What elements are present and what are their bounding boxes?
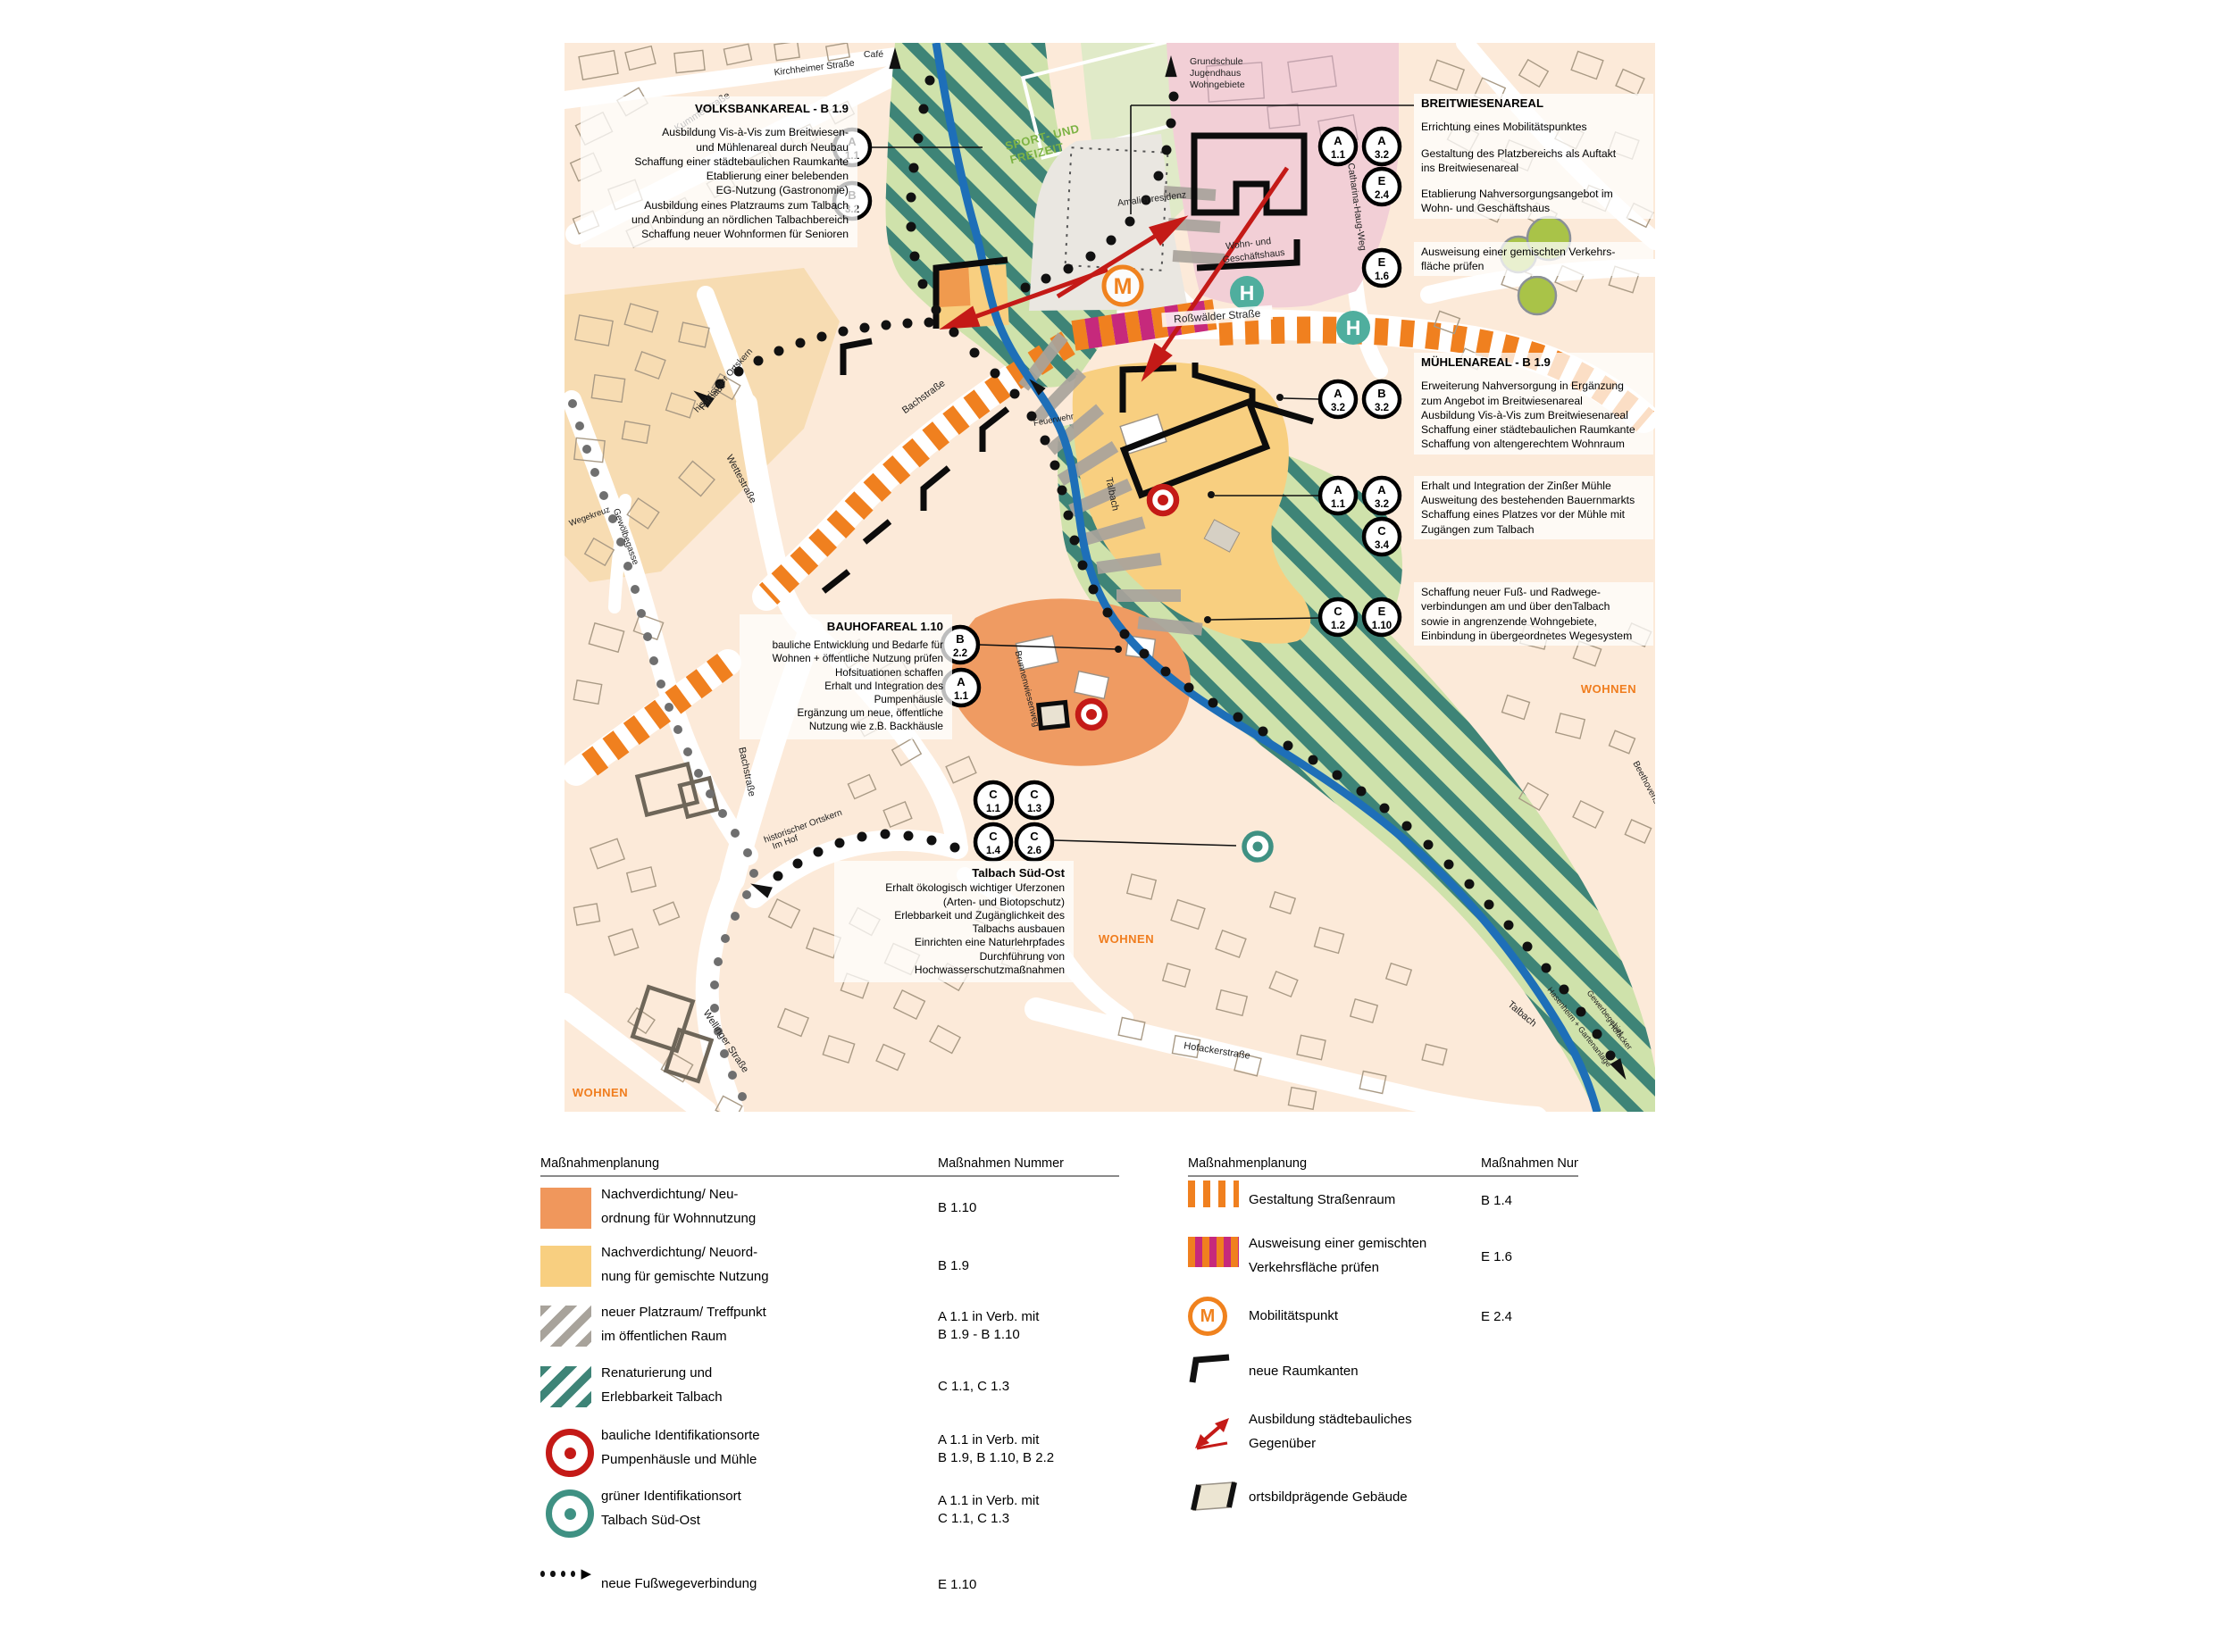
red-identification-icon	[1086, 709, 1097, 720]
annotation-title: BREITWIESENAREAL	[1421, 96, 1646, 111]
legend-row-label: ortsbildprägende Gebäude	[1249, 1485, 1408, 1509]
street-label: Wohngebiete	[1190, 79, 1245, 90]
footpath-dot	[1484, 900, 1494, 910]
path-dot-gray	[643, 632, 652, 641]
footpath-dot	[1154, 171, 1164, 181]
legend-row-number: B 1.10	[938, 1199, 976, 1217]
annotation-line: Schaffung einer städtebaulichen Raumkant…	[1421, 422, 1646, 437]
footpath-dot	[1161, 667, 1171, 677]
measure-marker: C1.3	[1016, 782, 1052, 818]
legend-row-label: bauliche IdentifikationsortePumpenhäusle…	[601, 1423, 760, 1472]
footpath-dot	[1058, 486, 1067, 496]
annotation-line: fläche prüfen	[1421, 259, 1646, 273]
legend-stripes-teal-icon	[540, 1366, 591, 1407]
path-dot-gray	[706, 789, 715, 798]
annotation-line: Erlebbarkeit und Zugänglichkeit des	[843, 909, 1065, 922]
legend-red-arrow-icon	[1188, 1413, 1239, 1462]
footpath-dot	[1402, 822, 1412, 831]
legend-row-number: A 1.1 in Verb. mitC 1.1, C 1.3	[938, 1492, 1039, 1528]
path-dot-gray	[590, 468, 599, 477]
svg-text:1.2: 1.2	[1331, 621, 1345, 631]
path-dot-gray	[599, 491, 608, 500]
annotation-line: Wohnen + öffentliche Nutzung prüfen	[749, 652, 943, 665]
legend-row-label: neue Raumkanten	[1249, 1359, 1359, 1383]
footpath-dot	[949, 328, 959, 338]
footpath-dot	[1070, 536, 1080, 546]
footpath-dot	[919, 104, 929, 114]
footpath-dot	[904, 831, 914, 841]
footpath-dot	[909, 163, 919, 173]
path-dot-gray	[673, 725, 682, 734]
annotation-line: Durchführung von	[843, 950, 1065, 964]
footpath-dot	[918, 280, 928, 289]
path-dot-gray	[749, 869, 758, 878]
annotation-line: (Arten- und Biotopschutz)	[843, 896, 1065, 909]
platzraum-stripe	[1116, 589, 1181, 602]
path-dot-gray	[728, 1071, 737, 1080]
svg-text:H: H	[1346, 316, 1361, 339]
annotation-talbach-suedost: Talbach Süd-Ost Erhalt ökologisch wichti…	[834, 861, 1074, 982]
svg-text:1.1: 1.1	[986, 804, 1001, 814]
annotation-line: Ausweitung des bestehenden Bauernmarkts	[1421, 493, 1646, 507]
green-identification-icon	[1253, 842, 1263, 852]
annotation-line: Pumpenhäusle	[749, 693, 943, 706]
legend-bullseye-teal-icon	[546, 1489, 594, 1538]
annotation-line: Erhalt und Integration der Zinßer Mühle	[1421, 479, 1646, 493]
footpath-dot	[814, 847, 824, 857]
footpath-dot	[1284, 741, 1293, 751]
footpath-dot	[1125, 217, 1135, 227]
footpath-dot	[1078, 561, 1088, 571]
annotation-bauhofareal: BAUHOFAREAL 1.10 bauliche Entwicklung un…	[740, 614, 952, 739]
legend-header-number: Maßnahmen Nummer	[1481, 1152, 1578, 1176]
legend-row-label: Nachverdichtung/ Neuord-nung für gemisch…	[601, 1240, 769, 1289]
zone-volksbank-orange	[936, 266, 970, 307]
annotation-title: MÜHLENAREAL - B 1.9	[1421, 355, 1646, 370]
footpath-dot	[1041, 274, 1051, 284]
legend-vstripes-mixed-icon	[1188, 1237, 1239, 1267]
footpath-dot	[1576, 1007, 1586, 1017]
plan-map: HHMA1.1B3.2A1.1A3.2E2.4E1.6A3.2B3.2A1.1A…	[565, 43, 1655, 1112]
footpath-dot	[1120, 630, 1130, 639]
path-dot-gray	[665, 703, 673, 712]
footpath-dot	[796, 338, 806, 348]
footpath-dot	[1103, 608, 1113, 618]
legend-right: Maßnahmenplanung Maßnahmen Nummer Gestal…	[1188, 1152, 1578, 1581]
legend-header-planning: Maßnahmenplanung	[540, 1152, 659, 1176]
legend-header-number: Maßnahmen Nummer	[938, 1152, 1064, 1176]
footpath-dot	[1184, 683, 1194, 693]
footpath-dot	[1234, 713, 1243, 722]
legend-row-number: C 1.1, C 1.3	[938, 1378, 1009, 1396]
path-dot-gray	[714, 957, 723, 966]
footpath-dot	[754, 356, 764, 366]
annotation-line: Ausbildung Vis-à-Vis zum Breitwiesen-	[590, 125, 849, 139]
path-dot-gray	[694, 769, 703, 778]
annotation-line: verbindungen am und über denTalbach	[1421, 599, 1646, 613]
legend-row-number: E 1.6	[1481, 1248, 1512, 1266]
svg-text:A: A	[1377, 483, 1386, 496]
svg-text:2.4: 2.4	[1375, 190, 1390, 201]
footpath-dot	[1424, 840, 1434, 850]
legend-dotted-arrow-icon: ▶	[540, 1564, 591, 1582]
legend-header-planning: Maßnahmenplanung	[1188, 1152, 1307, 1176]
footpath-dot	[950, 843, 960, 853]
svg-text:1.1: 1.1	[1331, 499, 1346, 510]
footpath-dot	[839, 327, 849, 337]
svg-text:3.2: 3.2	[1375, 150, 1389, 161]
svg-text:A: A	[1334, 387, 1342, 400]
street-label: WOHNEN	[573, 1086, 628, 1099]
annotation-line: Einbindung in übergeordnetes Wegesystem	[1421, 629, 1646, 643]
svg-text:A: A	[1334, 134, 1342, 147]
annotation-line: Schaffung eines Platzes vor der Mühle mi…	[1421, 507, 1646, 521]
measure-marker: B3.2	[1364, 381, 1400, 417]
annotation-line: zum Angebot im Breitwiesenareal	[1421, 394, 1646, 408]
path-dot-gray	[710, 980, 719, 989]
legend-row-number: A 1.1 in Verb. mitB 1.9 - B 1.10	[938, 1308, 1039, 1344]
footpath-dot	[1444, 860, 1454, 870]
path-dot-gray	[568, 399, 577, 408]
legend-row-number: E 1.10	[938, 1576, 976, 1594]
measure-marker: A3.2	[1320, 381, 1356, 417]
footpath-dot	[882, 321, 891, 330]
legend-row-label: Ausbildung städtebaulichesGegenüber	[1249, 1407, 1412, 1456]
footpath-dot	[927, 836, 937, 846]
measure-marker: A1.1	[1320, 478, 1356, 513]
annotation-lines: Ausbildung Vis-à-Vis zum Breitwiesen-und…	[590, 125, 849, 241]
path-dot-gray	[637, 609, 646, 618]
footpath-dot	[860, 323, 870, 333]
footpath-dot	[1086, 252, 1096, 262]
legend-row-label: Renaturierung undErlebbarkeit Talbach	[601, 1361, 723, 1409]
path-dot-gray	[743, 848, 752, 857]
path-dot-gray	[731, 912, 740, 921]
legend-left: Maßnahmenplanung Maßnahmen Nummer Nachve…	[540, 1152, 1121, 1634]
annotation-line: Ausbildung Vis-à-Vis zum Breitwiesenarea…	[1421, 408, 1646, 422]
legend-vstripes-orange-icon	[1188, 1181, 1239, 1207]
footpath-dot	[1107, 236, 1116, 246]
svg-text:B: B	[1377, 387, 1385, 400]
svg-text:E: E	[1378, 174, 1386, 188]
footpath-dot	[1169, 92, 1179, 102]
svg-text:C: C	[1377, 524, 1386, 538]
annotation-line: Etablierung Nahversorgungsangebot im	[1421, 187, 1646, 201]
annotation-line: Erhalt und Integration des	[749, 680, 943, 693]
measure-marker: A1.1	[1320, 129, 1356, 164]
leader-dot	[1208, 491, 1215, 498]
annotation-line: Erhalt ökologisch wichtiger Uferzonen	[843, 881, 1065, 895]
leader-dot	[1204, 616, 1211, 623]
footpath-dot	[924, 318, 934, 328]
footpath-dot	[910, 252, 920, 262]
footpath-dot	[774, 872, 783, 881]
path-dot-gray	[657, 680, 665, 688]
svg-text:C: C	[1030, 830, 1039, 843]
path-dot-gray	[718, 809, 727, 818]
footpath-dot	[793, 859, 803, 869]
legend-row-number: A 1.1 in Verb. mitB 1.9, B 1.10, B 2.2	[938, 1431, 1054, 1467]
legend-solid-orange-icon	[540, 1188, 591, 1229]
legend-row-number: B 1.4	[1481, 1192, 1512, 1210]
svg-text:3.2: 3.2	[1375, 499, 1389, 510]
svg-text:E: E	[1378, 605, 1386, 618]
footpath-dot	[903, 319, 913, 329]
footpath-dot	[1357, 787, 1367, 797]
path-dot-gray	[721, 934, 730, 943]
annotation-line: Hochwasserschutzmaßnahmen	[843, 964, 1065, 977]
footpath-dot	[1010, 389, 1020, 399]
legend-stripes-gray-icon	[540, 1306, 591, 1347]
annotation-line: Nutzung wie z.B. Backhäusle	[749, 720, 943, 733]
measure-marker: C2.6	[1016, 824, 1052, 860]
measure-marker: A3.2	[1364, 129, 1400, 164]
legend-row-label: grüner IdentifikationsortTalbach Süd-Ost	[601, 1484, 741, 1532]
svg-text:M: M	[1114, 274, 1133, 299]
footpath-dot	[1465, 880, 1475, 889]
measure-marker: C3.4	[1364, 519, 1400, 555]
annotation-breitwiesenareal: BREITWIESENAREAL Errichtung eines Mobili…	[1414, 94, 1653, 276]
street-label: Café	[864, 49, 883, 60]
footpath-dot	[1167, 119, 1176, 129]
footpath-dot	[1504, 921, 1514, 930]
footpath-dot	[1560, 985, 1569, 995]
annotation-title: VOLKSBANKAREAL - B 1.9	[590, 102, 849, 116]
svg-text:1.1: 1.1	[954, 691, 969, 702]
footpath-dot	[1021, 283, 1031, 293]
street-label: Jugendhaus	[1190, 68, 1241, 79]
annotation-line: Etablierung einer belebenden	[590, 169, 849, 183]
annotation-line: Ergänzung um neue, öffentliche	[749, 706, 943, 720]
footpath-dot	[1064, 264, 1074, 274]
svg-text:A: A	[1334, 483, 1342, 496]
path-dot-gray	[731, 829, 740, 838]
svg-text:3.2: 3.2	[1331, 403, 1345, 413]
path-dot-gray	[582, 445, 591, 454]
annotation-line: Ausbildung eines Platzraums zum Talbach	[590, 198, 849, 213]
annotation-line: und Mühlenareal durch Neubau	[590, 140, 849, 154]
annotation-muehlenareal: MÜHLENAREAL - B 1.9 Erweiterung Nahverso…	[1414, 353, 1653, 646]
annotation-line: Schaffung von altengerechtem Wohnraum	[1421, 437, 1646, 451]
measure-marker: E2.4	[1364, 169, 1400, 204]
path-dot-gray	[575, 421, 584, 430]
annotation-line: Zugängen zum Talbach	[1421, 522, 1646, 537]
legend-row-label: neuer Platzraum/ Treffpunktim öffentlich…	[601, 1300, 766, 1348]
footpath-dot	[1208, 698, 1218, 708]
footpath-dot	[932, 305, 941, 315]
footpath-dot	[1259, 727, 1268, 737]
path-dot-gray	[631, 585, 640, 594]
svg-text:C: C	[989, 830, 998, 843]
masterplan-page: HHMA1.1B3.2A1.1A3.2E2.4E1.6A3.2B3.2A1.1A…	[0, 0, 2233, 1652]
legend-row-number: B 1.9	[938, 1257, 969, 1275]
svg-text:3.4: 3.4	[1375, 540, 1390, 551]
legend-row-label: Nachverdichtung/ Neu-ordnung für Wohnnut…	[601, 1182, 756, 1231]
svg-text:A: A	[1377, 134, 1386, 147]
footpath-dot	[907, 222, 916, 232]
legend-row-label: neue Fußwegeverbindung	[601, 1572, 757, 1596]
annotation-line: Wohn- und Geschäftshaus	[1421, 201, 1646, 215]
street-label: Grundschule	[1190, 56, 1243, 67]
svg-text:1.1: 1.1	[1331, 150, 1346, 161]
path-dot-gray	[742, 890, 751, 899]
footpath-dot	[914, 134, 924, 144]
svg-text:E: E	[1378, 255, 1386, 269]
annotation-line: Ausweisung einer gemischten Verkehrs-	[1421, 245, 1646, 259]
measure-marker: E1.6	[1364, 250, 1400, 286]
legend-raumkante-icon	[1188, 1352, 1239, 1396]
footpath-dot	[991, 369, 1000, 379]
bus-stop-icon: H	[1230, 276, 1264, 310]
svg-text:H: H	[1240, 281, 1255, 305]
footpath-dot	[1064, 511, 1074, 521]
svg-text:3.2: 3.2	[1375, 403, 1389, 413]
legend-row-label: Gestaltung Straßenraum	[1249, 1188, 1395, 1212]
footpath-dot	[925, 76, 935, 86]
svg-text:1.4: 1.4	[986, 846, 1001, 856]
annotation-line: Gestaltung des Platzbereichs als Auftakt	[1421, 146, 1646, 161]
annotation-line: bauliche Entwicklung und Bedarfe für	[749, 638, 943, 652]
annotation-title: BAUHOFAREAL 1.10	[749, 620, 943, 633]
path-dot-gray	[649, 656, 658, 665]
legend-row-label: Mobilitätspunkt	[1249, 1304, 1338, 1328]
svg-text:C: C	[1030, 788, 1039, 801]
footpath-dot	[1380, 804, 1390, 813]
footpath-dot	[774, 346, 784, 356]
red-identification-icon	[1158, 495, 1168, 505]
measure-marker: E1.10	[1364, 599, 1400, 635]
svg-text:1.10: 1.10	[1372, 621, 1392, 631]
legend-parallelogram-icon	[1188, 1478, 1239, 1522]
legend-row-number: E 2.4	[1481, 1308, 1512, 1326]
footpath-dot	[1309, 755, 1318, 765]
street-label: WOHNEN	[1099, 932, 1154, 946]
footpath-dot	[1542, 964, 1551, 973]
legend-bullseye-red-icon	[546, 1429, 594, 1477]
svg-text:1.6: 1.6	[1375, 271, 1389, 282]
footpath-dot	[881, 830, 891, 839]
svg-text:2.6: 2.6	[1027, 846, 1041, 856]
svg-text:2.2: 2.2	[953, 648, 967, 659]
leader-dot	[1115, 646, 1122, 653]
footpath-dot	[1140, 649, 1150, 659]
street-label: WOHNEN	[1581, 682, 1636, 696]
measure-marker: C1.4	[975, 824, 1011, 860]
annotation-line: und Anbindung an nördlichen Talbachberei…	[590, 213, 849, 227]
path-dot-gray	[738, 1092, 747, 1101]
legend-m-circle-icon: M	[1188, 1297, 1239, 1336]
svg-text:A: A	[957, 675, 966, 688]
mobility-point-icon: M	[1104, 267, 1142, 305]
annotation-line: Hofsituationen schaffen	[749, 666, 943, 680]
footpath-dot	[1162, 146, 1172, 155]
footpath-dot	[907, 193, 916, 203]
annotation-line: Erweiterung Nahversorgung in Ergänzung	[1421, 379, 1646, 393]
footpath-dot	[857, 832, 867, 842]
footpath-dot	[1333, 771, 1342, 780]
annotation-line: Talbachs ausbauen	[843, 922, 1065, 936]
legend-solid-yellow-icon	[540, 1246, 591, 1287]
footpath-dot	[970, 348, 980, 358]
footpath-dot	[1523, 942, 1533, 952]
svg-text:C: C	[989, 788, 998, 801]
measure-marker: C1.1	[975, 782, 1011, 818]
pumpenhaeusle-building	[1039, 703, 1068, 729]
footpath-dot	[835, 839, 845, 848]
footpath-dot	[1089, 585, 1099, 595]
annotation-line: Schaffung neuer Fuß- und Radwege-	[1421, 585, 1646, 599]
svg-text:1.3: 1.3	[1027, 804, 1041, 814]
svg-text:C: C	[1334, 605, 1342, 618]
annotation-line: EG-Nutzung (Gastronomie)	[590, 183, 849, 197]
measure-marker: C1.2	[1320, 599, 1356, 635]
leader-line	[1284, 398, 1319, 399]
leader-dot	[1276, 394, 1284, 401]
footpath-dot	[1041, 436, 1050, 446]
annotation-line: Einrichten eine Naturlehrpfades	[843, 936, 1065, 949]
measure-marker: A3.2	[1364, 478, 1400, 513]
footpath-dot	[817, 332, 827, 342]
annotation-line: ins Breitwiesenareal	[1421, 161, 1646, 175]
svg-text:B: B	[956, 632, 964, 646]
legend-row-label: Ausweisung einer gemischtenVerkehrsfläch…	[1249, 1231, 1426, 1280]
footpath-dot	[1050, 461, 1060, 471]
annotation-line: Errichtung eines Mobilitätspunktes	[1421, 120, 1646, 134]
bus-stop-icon: H	[1336, 311, 1370, 345]
annotation-volksbankareal: VOLKSBANKAREAL - B 1.9 Ausbildung Vis-à-…	[581, 96, 857, 247]
annotation-line: Schaffung neuer Wohnformen für Senioren	[590, 227, 849, 241]
annotation-line: Schaffung einer städtebaulichen Raumkant…	[590, 154, 849, 169]
path-dot-gray	[683, 747, 692, 756]
annotation-title: Talbach Süd-Ost	[843, 866, 1065, 880]
tree-icon	[1518, 277, 1556, 314]
annotation-line: sowie in angrenzende Wohngebiete,	[1421, 614, 1646, 629]
